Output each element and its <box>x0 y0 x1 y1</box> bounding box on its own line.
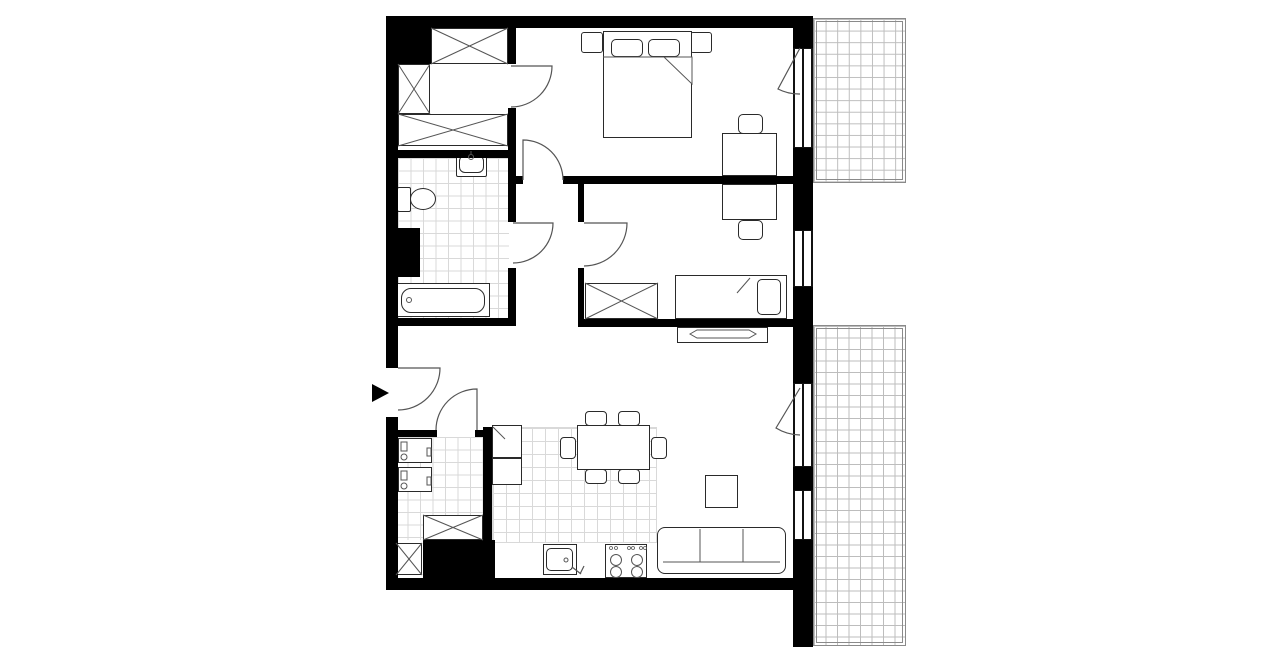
bedroom1-balcony-window-pane-line <box>802 49 804 147</box>
utility-wardrobe-1 <box>423 515 483 540</box>
bathroom-north-wall <box>386 150 516 158</box>
dining-chair-south-1 <box>585 469 607 484</box>
bedroom2-desk <box>722 184 777 220</box>
floor-plan <box>0 0 1280 667</box>
bedroom1-south-wall-nub <box>516 176 523 184</box>
entrance-arrow <box>372 384 389 402</box>
east-wall-bottom <box>793 540 813 647</box>
bedroom2-window-pane-line <box>802 231 804 286</box>
east-wall-top <box>793 16 813 48</box>
balcony-top-floor <box>813 18 906 183</box>
dining-chair-west <box>560 437 576 459</box>
east-wall-mid-1 <box>793 148 813 230</box>
wall-top <box>386 16 793 28</box>
stove <box>605 544 647 578</box>
livingroom-terrace-window-1 <box>793 383 813 467</box>
east-wall-mid-2 <box>793 287 813 383</box>
bathtub-inner <box>401 288 485 313</box>
kitchen-sink-basin <box>546 548 573 571</box>
livingroom-terrace-window-1-pane-line <box>802 384 804 466</box>
bedroom1-balcony-window <box>793 48 813 148</box>
bedroom2-south-wall <box>578 319 793 327</box>
bedroom1-desk-chair <box>738 114 763 134</box>
dining-chair-south-2 <box>618 469 640 484</box>
bedroom1-pillow-right <box>648 39 680 57</box>
livingroom-terrace-window-2-pane-line <box>802 491 804 539</box>
dining-table <box>577 425 650 470</box>
fridge-unit <box>492 425 522 458</box>
wall-bottom <box>386 578 793 590</box>
toilet-bowl <box>410 188 436 210</box>
dressing-door-swing <box>511 66 552 107</box>
terrace-bottom-floor <box>813 325 906 646</box>
coffee-table <box>705 475 738 508</box>
bedroom1-nightstand-left <box>581 32 603 53</box>
bathroom-door-swing <box>513 223 553 263</box>
corner-block <box>398 16 431 64</box>
bedroom2-wardrobe <box>585 283 658 319</box>
east-wall-mid-3 <box>793 467 813 490</box>
bedroom1-desk <box>722 133 777 176</box>
utility-door-swing <box>436 389 477 430</box>
dining-chair-north-1 <box>585 411 607 426</box>
entry-door-swing <box>398 368 440 410</box>
bedroom1-nightstand-right <box>690 32 712 53</box>
wall-left-lower <box>386 417 398 590</box>
utility-north-wall <box>395 430 437 437</box>
dressing-wardrobe-bottom <box>398 114 508 146</box>
utility-wardrobe-2 <box>396 543 422 575</box>
bedroom2-door-swing <box>584 223 627 266</box>
bedroom2-west-wall-upper <box>578 184 584 222</box>
bedroom1-pillow-left <box>611 39 643 57</box>
wall-left-upper <box>386 16 398 368</box>
bedroom1-door-swing <box>523 140 563 180</box>
bedroom2-desk-chair <box>738 220 763 240</box>
tv-sideboard <box>677 327 768 343</box>
bathroom-east-wall-upper <box>508 158 516 222</box>
sofa <box>657 527 786 574</box>
washing-machine-2 <box>398 467 432 492</box>
dressing-east-wall-upper <box>508 28 516 64</box>
bedroom1-south-wall <box>563 176 793 184</box>
toilet-tank <box>397 187 411 212</box>
dressing-wardrobe-top <box>431 28 508 64</box>
bedroom2-pillow <box>757 279 781 315</box>
dining-chair-east <box>651 437 667 459</box>
washing-machine-1 <box>398 438 432 463</box>
bathroom-south-wall <box>386 318 516 326</box>
bathroom-shaft <box>386 228 420 277</box>
dressing-wardrobe-left <box>398 64 430 114</box>
kitchen-unit <box>492 458 522 485</box>
dining-chair-north-2 <box>618 411 640 426</box>
livingroom-terrace-window-2 <box>793 490 813 540</box>
utility-shaft <box>423 540 495 578</box>
bedroom2-window <box>793 230 813 287</box>
